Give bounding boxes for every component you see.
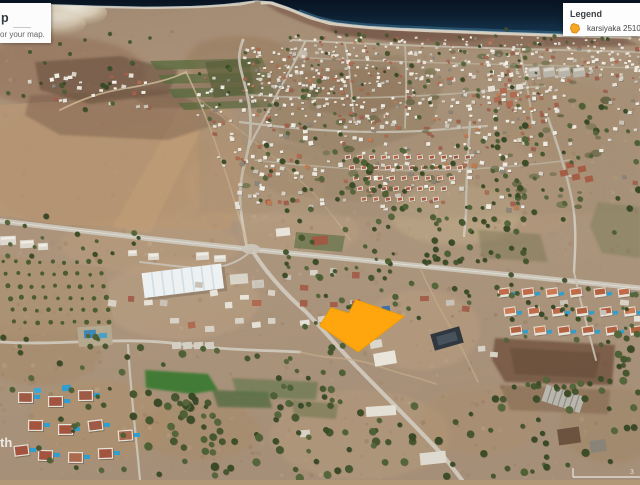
- svg-text:3: 3: [630, 469, 634, 476]
- svg-text:th: th: [0, 435, 12, 450]
